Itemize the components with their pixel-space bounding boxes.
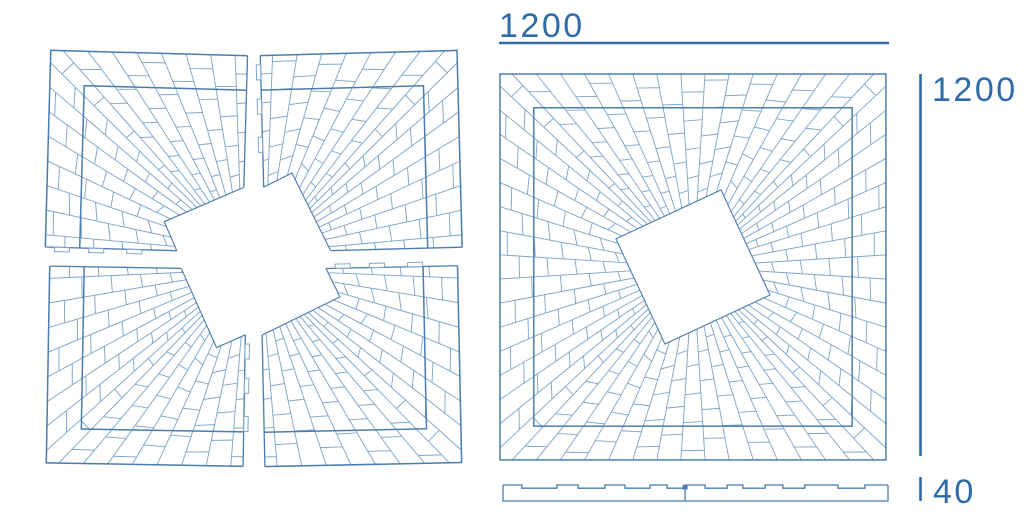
drawing-canvas: 1200 1200 40 [0, 0, 1024, 518]
thickness-dimension-label: 40 [933, 473, 976, 511]
assembled-view [500, 74, 886, 460]
joint-tab [257, 99, 262, 114]
side-profile-view [503, 485, 888, 501]
profile-top-edge-grooves [503, 485, 888, 488]
height-dimension-label: 1200 [932, 71, 1018, 109]
panel-side-profile [503, 485, 888, 501]
joint-tab [256, 65, 261, 80]
exploded-view [40, 50, 467, 470]
joint-tab [335, 264, 350, 269]
panel-piece-top-right [64, 50, 468, 454]
width-dimension-label: 1200 [499, 7, 585, 45]
joint-tab [245, 344, 250, 359]
joint-tab [127, 249, 142, 254]
panel-piece-bottom-right [60, 69, 462, 471]
profile-outline [503, 485, 888, 501]
joint-tab [407, 262, 422, 267]
profile-joint-key [683, 485, 688, 490]
width-dimension: 1200 [499, 7, 889, 45]
joint-tab [89, 248, 104, 253]
thickness-dimension: 40 [921, 473, 976, 511]
joint-tab [258, 137, 263, 152]
assembled-panel [500, 74, 886, 460]
joint-tab [54, 247, 69, 252]
joint-tab [244, 378, 249, 393]
joint-tab [369, 263, 384, 268]
height-dimension: 1200 [921, 71, 1018, 456]
joint-tab [244, 416, 249, 431]
technical-drawing-page: 1200 1200 40 [0, 0, 1024, 518]
